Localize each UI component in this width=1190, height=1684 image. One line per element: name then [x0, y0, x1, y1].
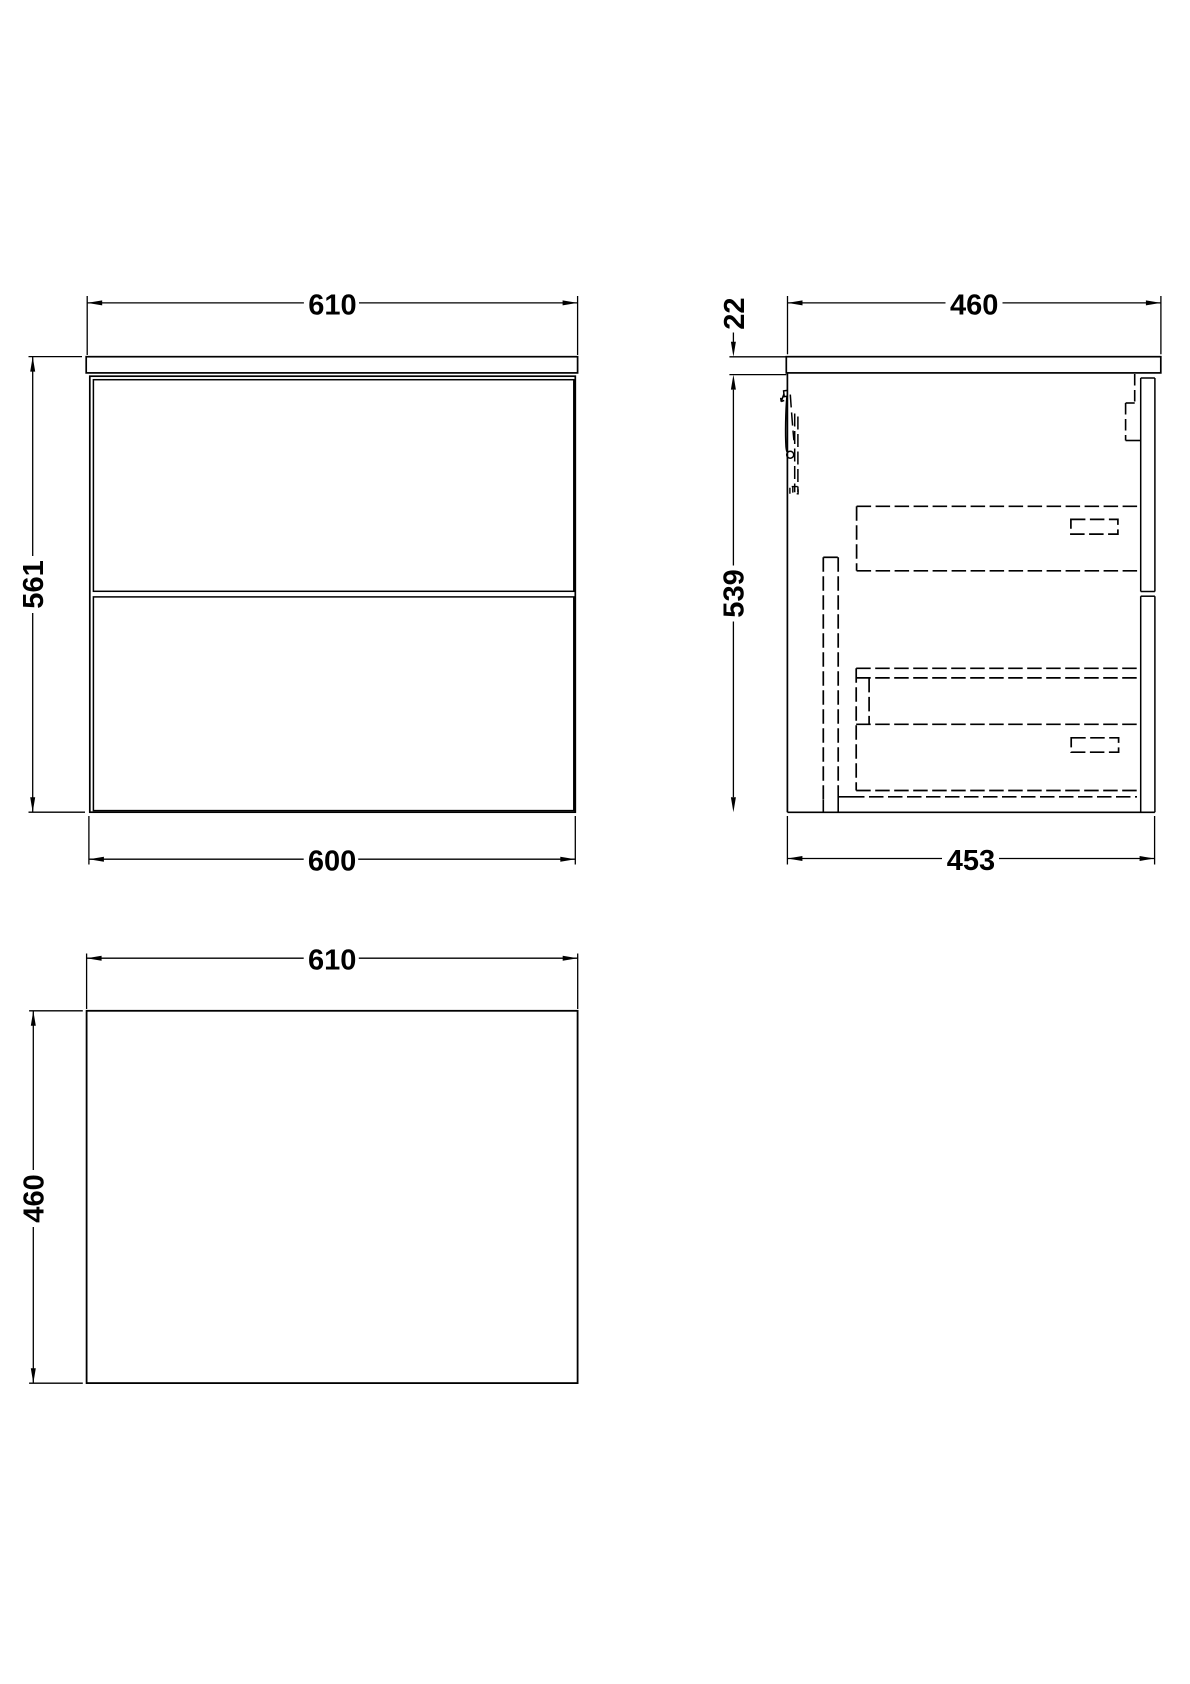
svg-text:600: 600 [308, 846, 356, 878]
svg-text:610: 610 [308, 289, 356, 321]
svg-text:22: 22 [719, 297, 751, 329]
svg-text:539: 539 [719, 569, 751, 617]
svg-text:561: 561 [18, 560, 50, 608]
svg-text:460: 460 [18, 1174, 50, 1222]
svg-text:610: 610 [308, 945, 356, 977]
svg-text:453: 453 [947, 845, 995, 877]
svg-text:460: 460 [950, 289, 998, 321]
